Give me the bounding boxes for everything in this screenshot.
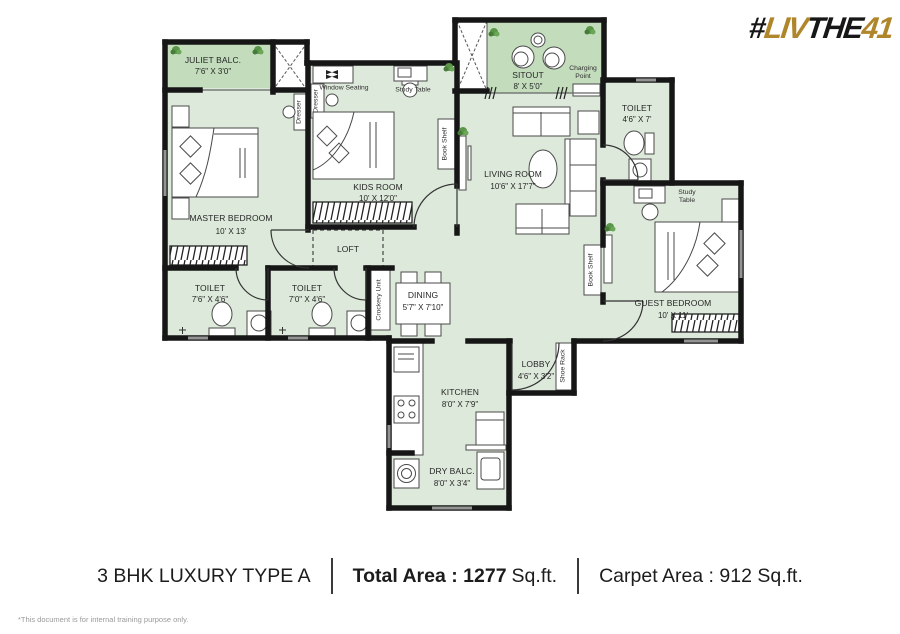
logo-the: THE: [804, 12, 864, 45]
room-dims-kitchen: 8'0" X 7'9": [442, 401, 478, 409]
room-dims-toilet-top: 4'6" X 7': [622, 116, 651, 124]
kids-bed-icon: [313, 112, 394, 179]
room-label-loft: LOFT: [337, 245, 359, 254]
guest-bed-icon: [655, 222, 739, 292]
room-label-toilet-top: TOILET: [622, 104, 652, 113]
total-area-unit: Sq.ft.: [512, 565, 558, 587]
caption-bar: 3 BHK LUXURY TYPE A Total Area : 1277Sq.…: [0, 554, 900, 598]
room-label-dry-balcony: DRY BALC.: [429, 467, 474, 476]
room-label-dining: DINING: [408, 291, 438, 300]
floor-plan-page: { "logo": {"hash": "#", "liv": "LIV", "t…: [0, 0, 900, 634]
label-dresser: Dresser: [297, 100, 304, 124]
logo-liv: LIV: [762, 12, 808, 45]
room-label-guest-bedroom: GUEST BEDROOM: [635, 299, 712, 308]
nightstand-icon: [722, 199, 739, 222]
room-label-sitout: SITOUT: [512, 71, 544, 80]
room-dims-dining: 5'7" X 7'10": [403, 304, 444, 312]
room-dims-toilet-left: 7'6" X 4'6": [192, 296, 228, 304]
room-label-living-room: LIVING ROOM: [484, 170, 542, 179]
room-label-toilet-left: TOILET: [195, 284, 225, 293]
room-dims-juliet-balcony: 7'6" X 3'0": [195, 68, 231, 76]
label-window-seating: Window Seating: [319, 86, 368, 93]
room-dims-master-bedroom: 10' X 13': [216, 228, 247, 236]
room-dims-kids-room: 10' X 12'0": [359, 195, 397, 203]
floor-plan: JULIET BALC. 7'6" X 3'0" MASTER BEDROOM …: [0, 0, 900, 545]
label-book-shelf: Book Shelf: [589, 254, 596, 287]
label-study-table: Study Table: [395, 88, 430, 95]
room-label-kids-room: KIDS ROOM: [353, 183, 403, 192]
plan-type-title: 3 BHK LUXURY TYPE A: [97, 565, 311, 588]
window-seat-icon: [313, 66, 353, 83]
room-dims-guest-bedroom: 10' X 11': [658, 312, 688, 320]
charging-point-icon: [573, 84, 600, 96]
room-dims-lobby: 4'6" X 3'2": [518, 373, 554, 381]
brand-logo: #LIVTHE41: [747, 12, 894, 46]
label-crockery-unit: Crockery Unit: [377, 279, 384, 320]
floor-plan-svg: [0, 0, 900, 545]
logo-41: 41: [860, 12, 894, 45]
caption-divider: [331, 558, 333, 594]
room-dims-sitout: 8' X 5'0": [513, 83, 542, 91]
carpet-area: Carpet Area : 912 Sq.ft.: [599, 565, 803, 588]
total-area: Total Area : 1277Sq.ft.: [353, 565, 557, 588]
room-label-kitchen: KITCHEN: [441, 388, 479, 397]
room-dims-living-room: 10'6" X 17'7": [490, 183, 535, 191]
room-label-juliet-balcony: JULIET BALC.: [185, 56, 241, 65]
label-book-shelf: Book Shelf: [443, 128, 450, 161]
caption-divider: [577, 558, 579, 594]
total-area-value: Total Area : 1277: [353, 565, 507, 587]
disclaimer-note: *This document is for internal training …: [18, 615, 188, 624]
label-shoe-rack: Shoe Rack: [561, 349, 568, 382]
label-dresser: Dresser: [314, 89, 321, 113]
room-dims-dry-balcony: 8'0" X 3'4": [434, 480, 470, 488]
room-label-lobby: LOBBY: [522, 360, 551, 369]
room-label-master-bedroom: MASTER BEDROOM: [189, 214, 272, 223]
room-label-toilet-mid: TOILET: [292, 284, 322, 293]
label-study-table-guest: Study Table: [674, 189, 700, 205]
room-dims-toilet-mid: 7'0" X 4'6": [289, 296, 325, 304]
label-charging-point: Charging Point: [565, 65, 601, 81]
